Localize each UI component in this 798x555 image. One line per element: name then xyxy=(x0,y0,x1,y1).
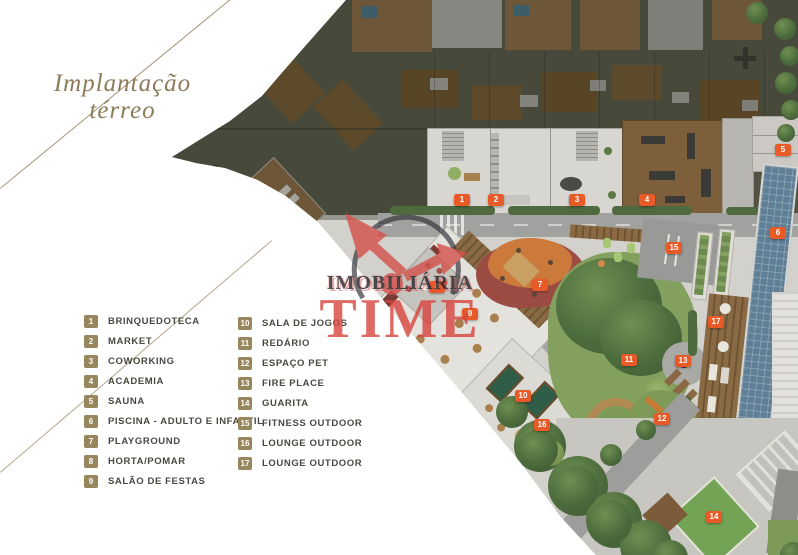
legend-number-badge: 5 xyxy=(84,395,98,408)
legend-number-badge: 10 xyxy=(238,317,252,330)
play-equipment xyxy=(548,260,553,265)
legend-column-1: 1 BRINQUEDOTECA 2 MARKET 3 COWORKING 4 A… xyxy=(84,315,264,488)
legend-item: 6 PISCINA - ADULTO E INFANTIL xyxy=(84,415,264,428)
legend-number-badge: 1 xyxy=(84,315,98,328)
stairs xyxy=(576,131,598,161)
legend-label: FITNESS OUTDOOR xyxy=(262,418,362,429)
planter-pot xyxy=(274,231,288,245)
legend-label: MARKET xyxy=(108,336,152,347)
lounge-chair xyxy=(424,261,432,269)
sun-lounger xyxy=(707,396,717,413)
tree xyxy=(552,466,598,512)
legend-item: 10 SALA DE JOGOS xyxy=(238,317,362,330)
legend-item: 9 SALÃO DE FESTAS xyxy=(84,475,264,488)
legend-number-badge: 6 xyxy=(84,415,98,428)
party-table xyxy=(414,333,427,346)
legend-number-badge: 15 xyxy=(238,417,252,430)
toy-rug xyxy=(448,167,461,180)
bean-bag xyxy=(603,238,611,248)
lounge-chair xyxy=(440,279,448,287)
legend-item: 14 GUARITA xyxy=(238,397,362,410)
gym-equipment xyxy=(701,169,711,197)
plant-pot xyxy=(608,191,616,199)
ground-floor-lobby xyxy=(427,128,624,217)
fire-flame xyxy=(682,360,686,364)
building-shadow xyxy=(150,128,427,220)
legend-label: LOUNGE OUTDOOR xyxy=(262,458,362,469)
legend-label: ESPAÇO PET xyxy=(262,358,329,369)
legend-number-badge: 9 xyxy=(84,475,98,488)
roadside-hedge xyxy=(600,444,622,466)
page-title: Implantação térreo xyxy=(30,70,215,124)
street-hedge xyxy=(390,206,495,215)
legend-column-2: 10 SALA DE JOGOS 11 REDÁRIO 12 ESPAÇO PE… xyxy=(238,317,362,470)
roof-vent-cross xyxy=(204,174,226,179)
toy-shelf xyxy=(464,173,480,181)
legend-item: 5 SAUNA xyxy=(84,395,264,408)
party-table xyxy=(471,342,484,355)
legend-item: 7 PLAYGROUND xyxy=(84,435,264,448)
page-title-line1: Implantação xyxy=(30,70,215,97)
legend-item: 3 COWORKING xyxy=(84,355,264,368)
legend-label: GUARITA xyxy=(262,398,309,409)
sun-lounger xyxy=(720,367,730,384)
legend-number-badge: 8 xyxy=(84,455,98,468)
legend-number-badge: 13 xyxy=(238,377,252,390)
gym-equipment xyxy=(665,196,685,203)
legend-label: SALÃO DE FESTAS xyxy=(108,476,206,487)
legend-number-badge: 11 xyxy=(238,337,252,350)
play-equipment xyxy=(500,276,505,281)
legend-label: LOUNGE OUTDOOR xyxy=(262,438,362,449)
legend-item: 4 ACADEMIA xyxy=(84,375,264,388)
legend-number-badge: 3 xyxy=(84,355,98,368)
legend-number-badge: 14 xyxy=(238,397,252,410)
legend-number-badge: 17 xyxy=(238,457,252,470)
tree xyxy=(588,500,632,544)
legend-label: SALA DE JOGOS xyxy=(262,318,348,329)
tree xyxy=(777,124,795,142)
lounge-chair xyxy=(405,285,413,293)
party-table xyxy=(488,312,501,325)
roof-vent-cross xyxy=(213,165,218,187)
legend-item: 2 MARKET xyxy=(84,335,264,348)
lounge-table xyxy=(483,402,494,413)
party-table xyxy=(453,317,466,330)
legend-label: COWORKING xyxy=(108,356,175,367)
bean-bag xyxy=(598,260,605,267)
legend-label: FIRE PLACE xyxy=(262,378,324,389)
market-counter xyxy=(504,195,530,205)
jacuzzi xyxy=(236,190,256,211)
meeting-table xyxy=(560,177,582,191)
room-divider xyxy=(753,153,798,154)
planter-greens xyxy=(694,235,709,296)
legend-item: 8 HORTA/POMAR xyxy=(84,455,264,468)
deck-hedge xyxy=(688,310,697,356)
gym-equipment xyxy=(649,171,675,180)
tree xyxy=(775,72,797,94)
tree xyxy=(774,18,796,40)
deck-band xyxy=(350,338,456,438)
party-table xyxy=(439,353,452,366)
legend-number-badge: 16 xyxy=(238,437,252,450)
building-shadow xyxy=(150,0,798,130)
room-divider xyxy=(550,129,551,216)
deck-table xyxy=(717,341,729,353)
play-equipment xyxy=(516,248,521,253)
sun-lounger xyxy=(708,364,718,381)
plant-pot xyxy=(604,147,612,155)
legend-item: 15 FITNESS OUTDOOR xyxy=(238,417,362,430)
market-shelves xyxy=(491,133,499,203)
legend-label: SAUNA xyxy=(108,396,145,407)
tree xyxy=(496,396,528,428)
legend-item: 13 FIRE PLACE xyxy=(238,377,362,390)
neighbor-roof-panels xyxy=(772,292,798,422)
legend-label: PLAYGROUND xyxy=(108,436,181,447)
page-title-line2: térreo xyxy=(30,97,215,124)
planter-greens xyxy=(716,232,731,293)
lounge-chair xyxy=(435,267,443,275)
legend-label: ACADEMIA xyxy=(108,376,164,387)
legend-number-badge: 4 xyxy=(84,375,98,388)
street-hedge xyxy=(612,206,692,215)
deck-table xyxy=(719,303,731,315)
tree xyxy=(780,46,798,66)
stairs xyxy=(442,131,464,161)
tree xyxy=(781,100,798,120)
gym-room xyxy=(622,120,724,217)
legend-item: 1 BRINQUEDOTECA xyxy=(84,315,264,328)
legend-item: 16 LOUNGE OUTDOOR xyxy=(238,437,362,450)
legend-label: BRINQUEDOTECA xyxy=(108,316,200,327)
legend-item: 17 LOUNGE OUTDOOR xyxy=(238,457,362,470)
legend-item: 12 ESPAÇO PET xyxy=(238,357,362,370)
legend-number-badge: 2 xyxy=(84,335,98,348)
street-hedge xyxy=(508,206,600,215)
tree xyxy=(518,430,558,470)
legend-number-badge: 7 xyxy=(84,435,98,448)
gym-equipment xyxy=(641,136,665,144)
service-rooms xyxy=(722,118,754,217)
legend-number-badge: 12 xyxy=(238,357,252,370)
play-equipment xyxy=(532,292,537,297)
legend-label: REDÁRIO xyxy=(262,338,310,349)
implantation-page: Implantação térreo xyxy=(0,0,798,555)
roadside-hedge xyxy=(636,420,656,440)
gym-equipment xyxy=(687,133,695,159)
bean-bag xyxy=(614,252,622,262)
legend-item: 11 REDÁRIO xyxy=(238,337,362,350)
tree xyxy=(746,2,768,24)
lounge-table xyxy=(418,280,431,293)
legend-label: HORTA/POMAR xyxy=(108,456,186,467)
crosswalk xyxy=(461,215,464,235)
bean-bag xyxy=(627,243,635,253)
